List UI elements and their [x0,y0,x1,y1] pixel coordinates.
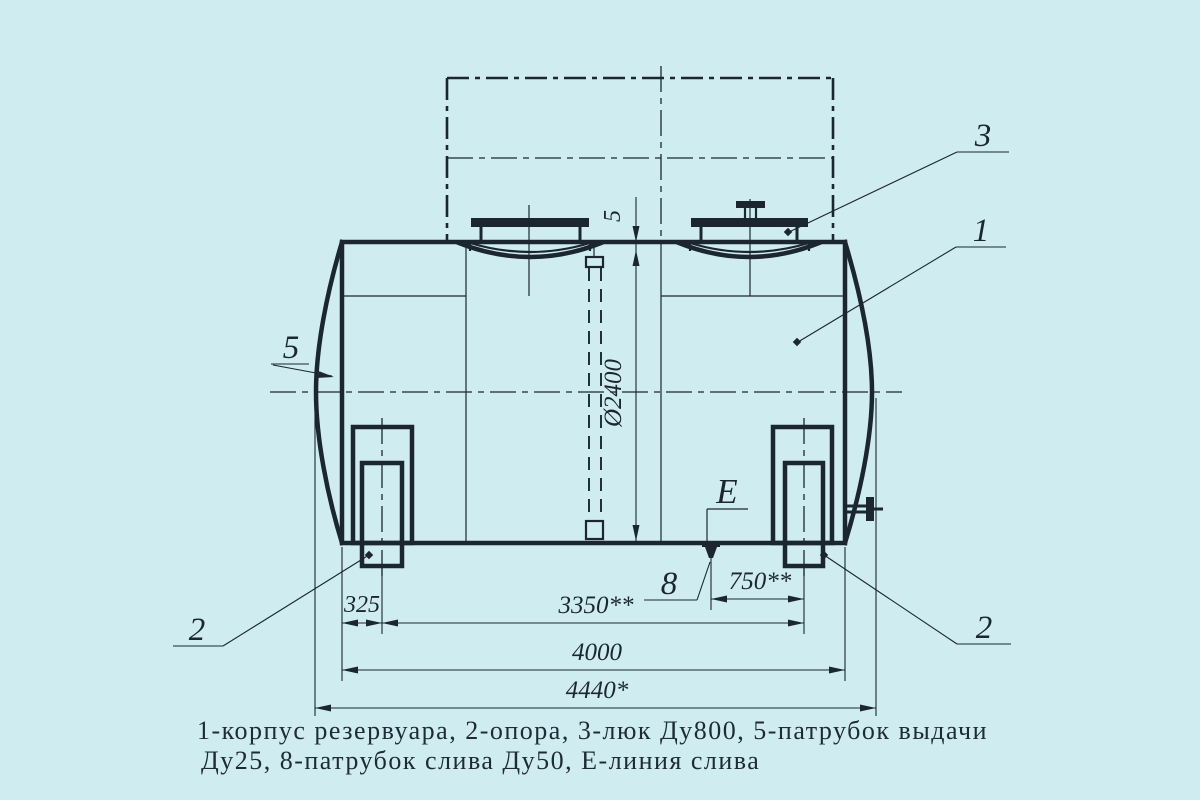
tank-body [270,242,902,543]
svg-text:5: 5 [283,330,300,366]
caption-line-2: Ду25, 8-патрубок слива Ду50, Е-линия сли… [201,746,760,775]
svg-text:3350**: 3350** [558,592,635,619]
svg-text:2: 2 [976,610,993,646]
drawing-sheet: Е 5 Ø2400 750** 325 3350** [0,0,1200,800]
manhole-left [459,205,601,296]
svg-text:325: 325 [343,592,380,618]
extension-lines [315,394,876,716]
svg-text:4000: 4000 [572,639,623,666]
manhole-left-flange [471,218,589,227]
manhole-right [679,199,819,296]
phantom-clearance-outline [447,66,833,242]
caption-line-1: 1-корпус резервуара, 2-опора, 3-люк Ду80… [197,716,988,745]
dimension-325-3350: 325 3350** [342,592,804,627]
callout-support-right-2: 2 [820,551,1011,646]
caption: 1-корпус резервуара, 2-опора, 3-люк Ду80… [197,716,988,775]
callout-outlet-5: 5 [271,330,334,378]
drain-nozzle [702,542,720,558]
wall-thickness-label: 5 [600,210,626,222]
callout-body-1: 1 [793,213,1006,346]
svg-text:750**: 750** [729,568,792,595]
callout-drain-8: 8 [644,562,710,602]
drain-line-label: Е [715,472,737,511]
dimension-diameter: 5 Ø2400 [600,197,640,543]
dimension-750: 750** [711,568,804,603]
technical-drawing-tank-reservoir: Е 5 Ø2400 750** 325 3350** [0,0,1200,800]
diameter-label: Ø2400 [600,358,627,428]
dimension-4440: 4440* [315,677,876,712]
svg-text:1: 1 [973,213,990,249]
svg-text:3: 3 [974,118,992,154]
drain-line-marker: Е [707,472,748,545]
dimension-4000: 4000 [342,639,845,674]
svg-text:4440*: 4440* [566,677,629,704]
svg-text:8: 8 [661,566,678,602]
support-left [353,418,412,578]
svg-text:2: 2 [189,612,206,648]
